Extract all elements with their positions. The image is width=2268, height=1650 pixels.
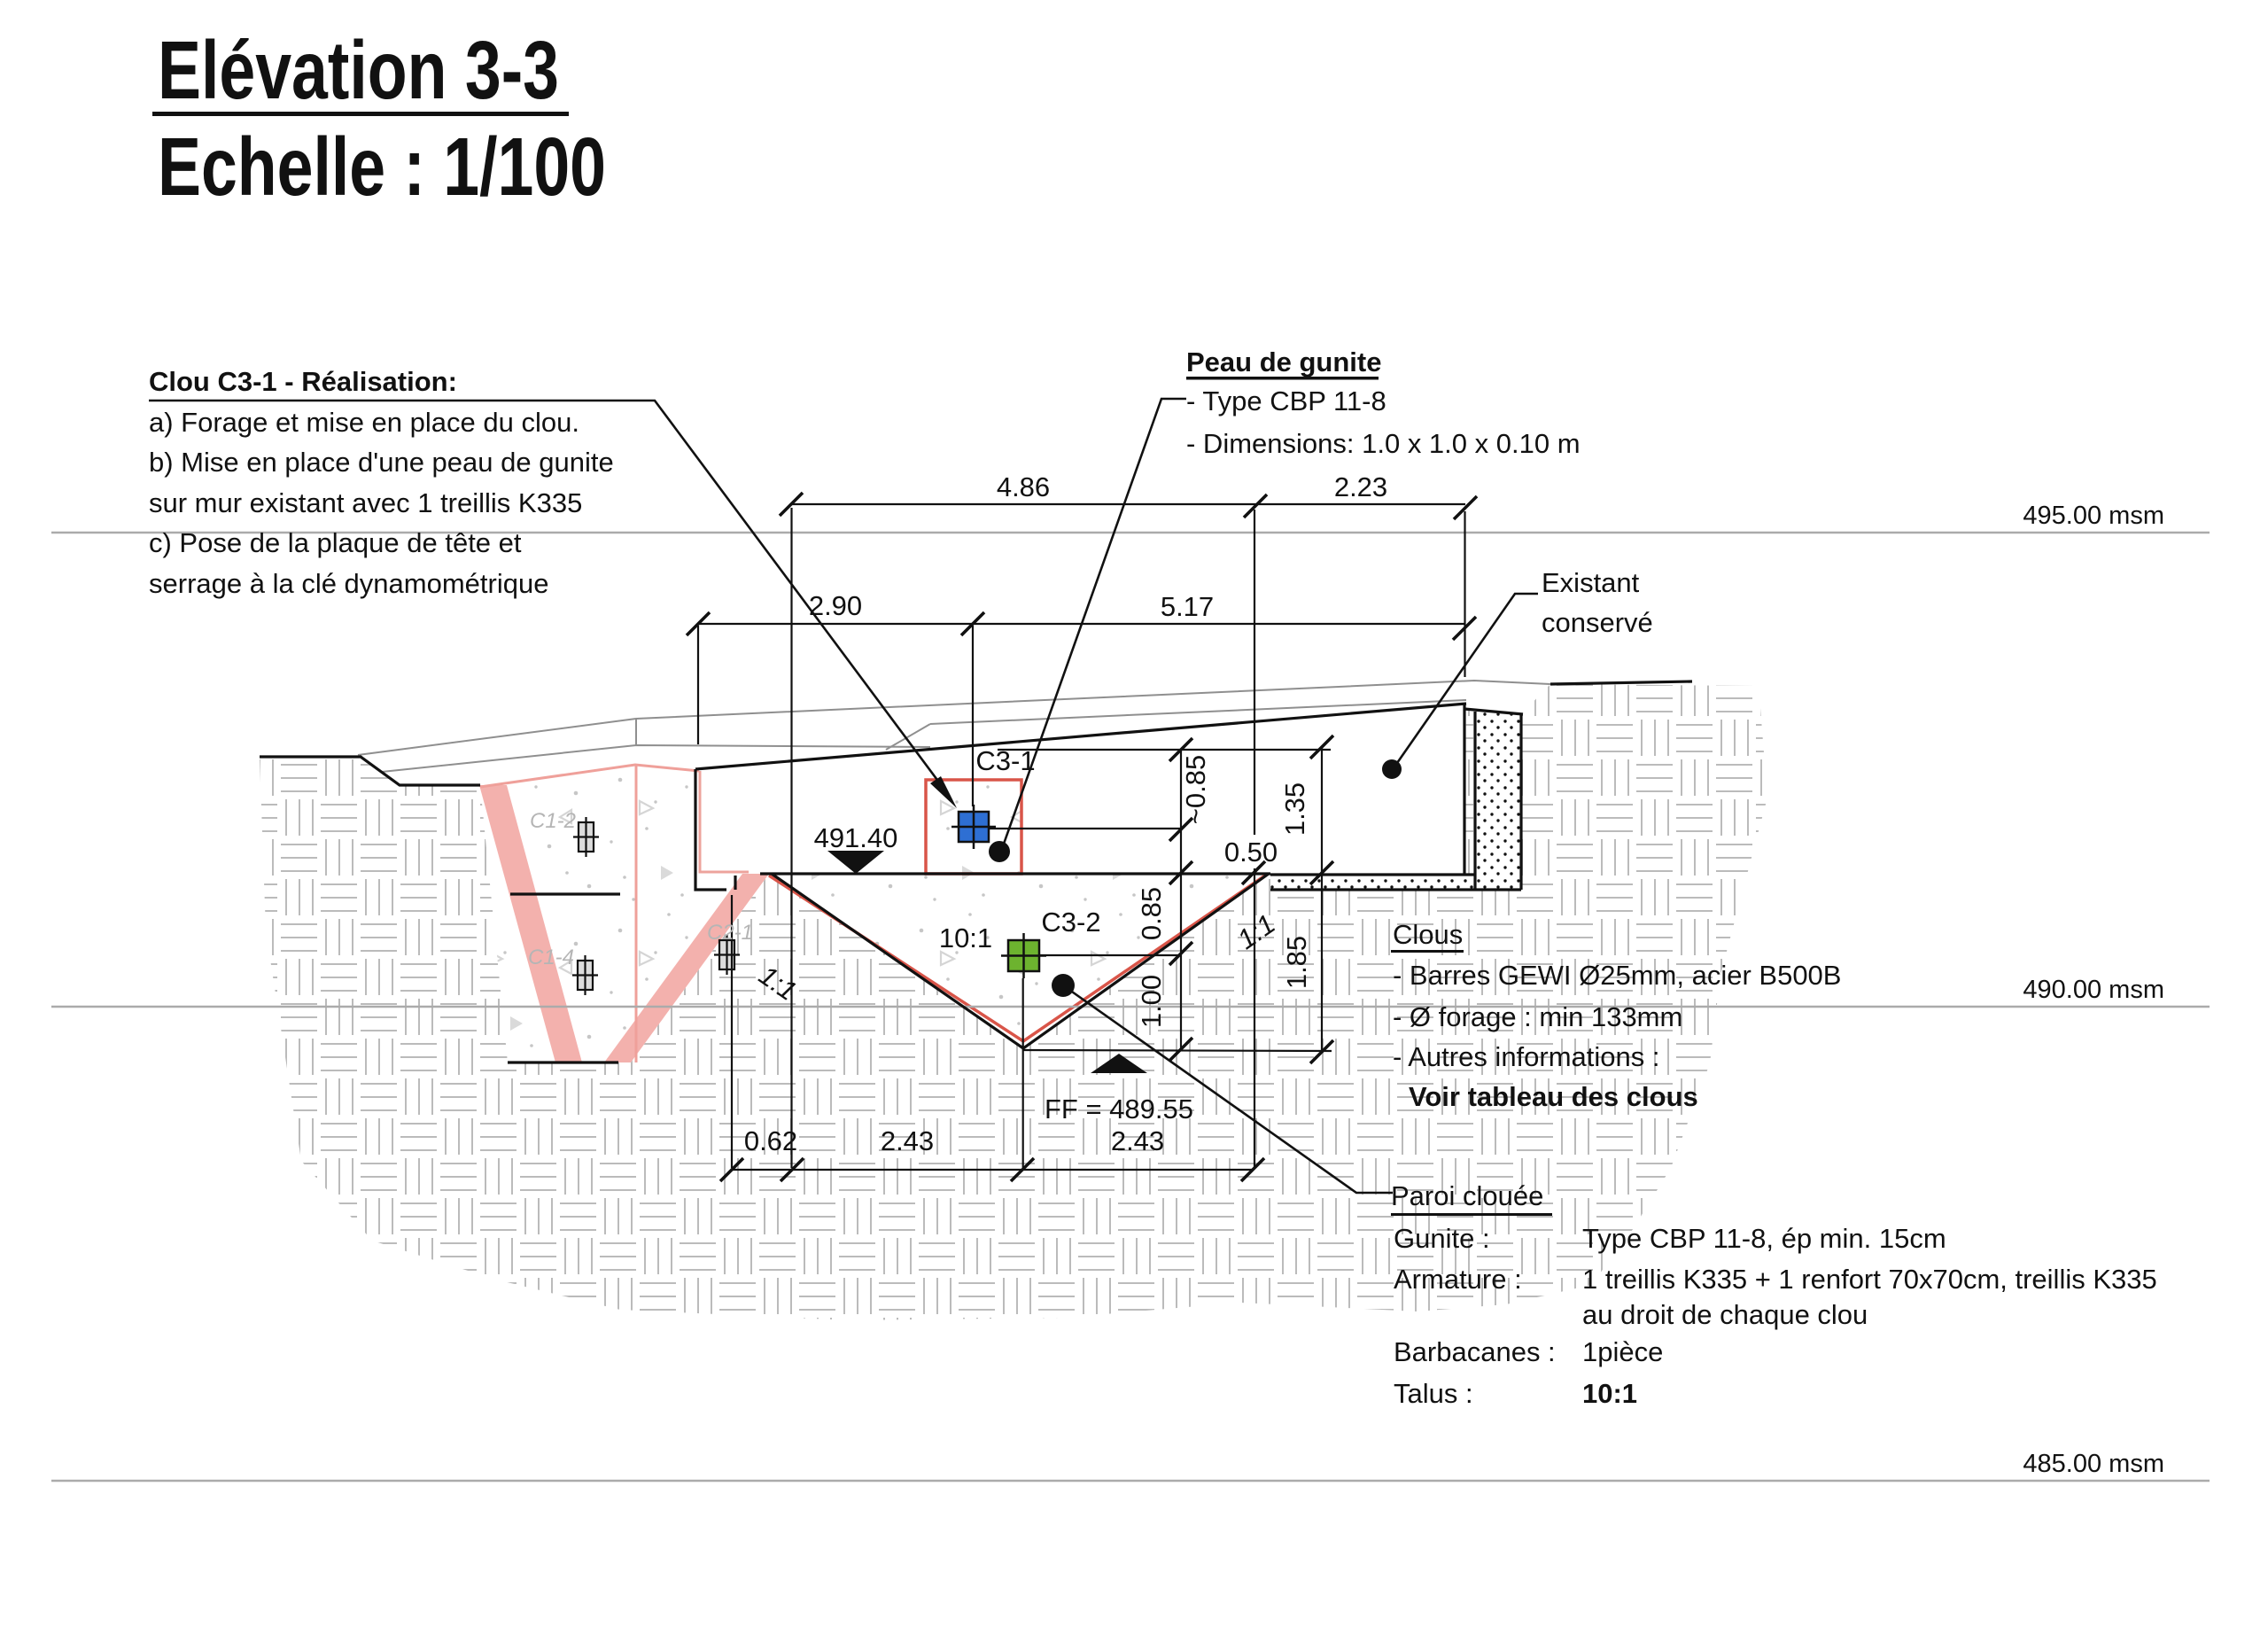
svg-text:0.50: 0.50	[1224, 837, 1278, 868]
svg-text:2.90: 2.90	[809, 590, 862, 621]
svg-text:Elévation 3-3: Elévation 3-3	[158, 24, 559, 116]
svg-text:conservé: conservé	[1542, 607, 1653, 638]
svg-text:1.85: 1.85	[1281, 936, 1312, 989]
svg-text:1pièce: 1pièce	[1582, 1336, 1663, 1367]
svg-text:C1-2: C1-2	[530, 809, 576, 833]
svg-text:serrage à la clé dynamométriqu: serrage à la clé dynamométrique	[149, 568, 548, 599]
svg-text:10:1: 10:1	[939, 922, 992, 953]
svg-text:2.23: 2.23	[1334, 471, 1387, 502]
svg-text:Existant: Existant	[1542, 567, 1640, 598]
svg-text:au droit de chaque clou: au droit de chaque clou	[1582, 1299, 1868, 1330]
svg-text:- Autres informations :: - Autres informations :	[1393, 1041, 1660, 1072]
svg-text:1.00: 1.00	[1136, 975, 1167, 1028]
svg-text:Talus :: Talus :	[1394, 1378, 1473, 1409]
svg-text:c) Pose de la plaque de tête e: c) Pose de la plaque de tête et	[149, 527, 522, 558]
svg-text:4.86: 4.86	[997, 471, 1050, 502]
svg-text:a) Forage et mise en place du: a) Forage et mise en place du clou.	[149, 407, 579, 438]
svg-text:Clou C3-1 - Réalisation:: Clou C3-1 - Réalisation:	[149, 366, 457, 397]
svg-text:C3-1: C3-1	[975, 745, 1035, 776]
svg-text:2.43: 2.43	[881, 1125, 934, 1156]
svg-text:Peau de gunite: Peau de gunite	[1186, 346, 1381, 377]
svg-text:FF = 489.55: FF = 489.55	[1045, 1094, 1193, 1125]
svg-text:C3-2: C3-2	[1041, 907, 1100, 938]
svg-text:0.85: 0.85	[1136, 887, 1167, 940]
svg-text:10:1: 10:1	[1582, 1378, 1637, 1409]
svg-text:sur mur existant avec 1 treill: sur mur existant avec 1 treillis K335	[149, 487, 582, 518]
svg-text:Armature :: Armature :	[1394, 1264, 1522, 1295]
svg-text:Barbacanes :: Barbacanes :	[1394, 1336, 1556, 1367]
svg-text:Paroi clouée: Paroi clouée	[1391, 1180, 1543, 1211]
svg-text:- Dimensions: 1.0 x 1.0 x 0.10: - Dimensions: 1.0 x 1.0 x 0.10 m	[1186, 428, 1581, 459]
svg-text:- Barres GEWI Ø25mm, acier B50: - Barres GEWI Ø25mm, acier B500B	[1393, 960, 1841, 991]
svg-text:Gunite :: Gunite :	[1394, 1223, 1490, 1254]
svg-text:1 treillis K335 + 1 renfort 7: 1 treillis K335 + 1 renfort 70x70cm, tre…	[1582, 1264, 2157, 1295]
svg-text:485.00 msm: 485.00 msm	[2023, 1450, 2164, 1478]
svg-text:Echelle : 1/100: Echelle : 1/100	[158, 121, 606, 213]
svg-text:C2-1: C2-1	[707, 921, 753, 945]
svg-text:5.17: 5.17	[1161, 591, 1214, 622]
svg-text:b) Mise en place d'une peau de: b) Mise en place d'une peau de gunite	[149, 447, 614, 478]
svg-text:- Ø forage : min 133mm: - Ø forage : min 133mm	[1393, 1001, 1682, 1032]
svg-text:- Type CBP 11-8: - Type CBP 11-8	[1186, 385, 1386, 416]
svg-text:1.35: 1.35	[1279, 782, 1310, 836]
svg-text:~0.85: ~0.85	[1180, 755, 1211, 824]
svg-text:Type CBP 11-8, ép min. 15cm: Type CBP 11-8, ép min. 15cm	[1582, 1223, 1946, 1254]
svg-text:490.00 msm: 490.00 msm	[2023, 976, 2164, 1004]
svg-text:495.00 msm: 495.00 msm	[2023, 502, 2164, 530]
svg-text:C1-4: C1-4	[528, 946, 574, 969]
svg-text:Clous: Clous	[1393, 919, 1463, 950]
svg-text:Voir tableau des clous: Voir tableau des clous	[1409, 1081, 1698, 1112]
svg-text:2.43: 2.43	[1111, 1125, 1164, 1156]
svg-text:491.40: 491.40	[814, 822, 898, 853]
svg-text:0.62: 0.62	[744, 1125, 797, 1156]
